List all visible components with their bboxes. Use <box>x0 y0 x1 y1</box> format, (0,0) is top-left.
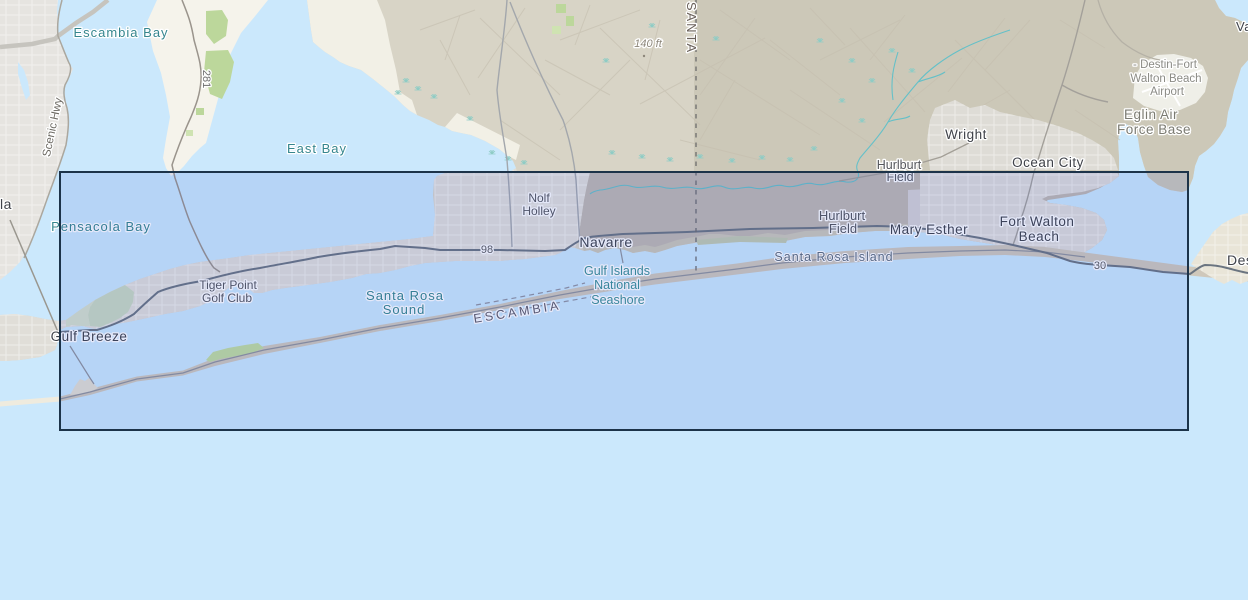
svg-text:Force Base: Force Base <box>1117 122 1191 137</box>
svg-text:Eglin Air: Eglin Air <box>1124 107 1178 122</box>
svg-text:Ocean City: Ocean City <box>1012 155 1084 170</box>
svg-text:140 ft: 140 ft <box>634 38 662 50</box>
svg-text:281: 281 <box>200 70 212 88</box>
svg-text:East Bay: East Bay <box>287 141 347 156</box>
svg-text:Des: Des <box>1227 252 1248 268</box>
svg-text:Wright: Wright <box>945 127 987 142</box>
svg-text:- Destin-Fort: - Destin-Fort <box>1133 59 1198 71</box>
svg-text:Walton Beach: Walton Beach <box>1130 73 1201 85</box>
svg-text:la: la <box>0 196 12 212</box>
svg-text:Escambia Bay: Escambia Bay <box>73 25 168 40</box>
svg-text:Va: Va <box>1236 19 1248 34</box>
svg-text:SANTA: SANTA <box>684 2 699 54</box>
svg-text:Airport: Airport <box>1150 86 1185 98</box>
